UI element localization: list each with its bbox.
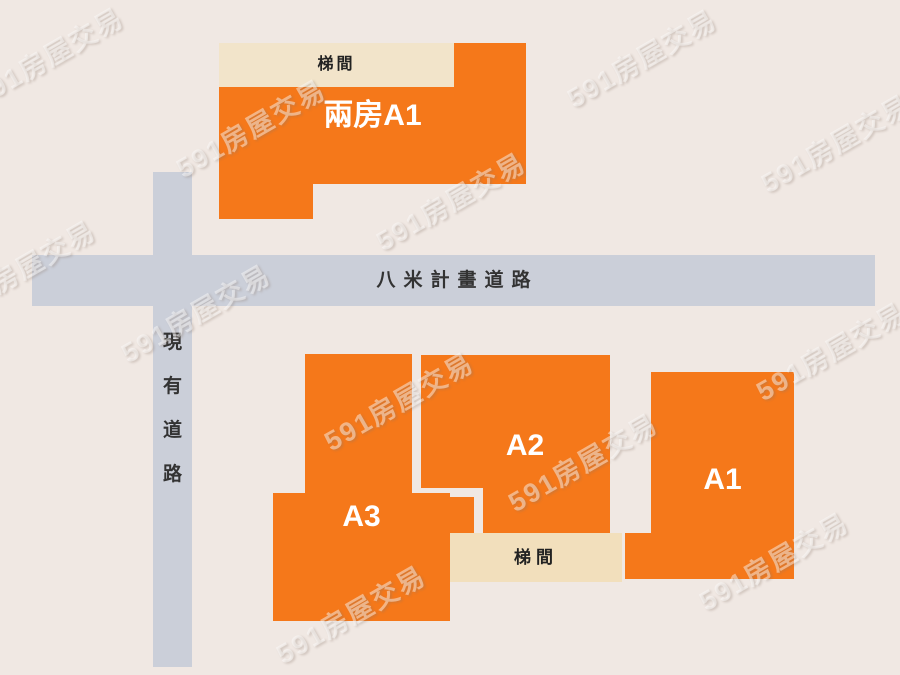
stairwell-bottom-label: 梯間 (450, 533, 622, 582)
watermark: 591房屋交易 (559, 0, 723, 116)
building-tworoom-a1-label: 兩房A1 (219, 98, 526, 134)
building-a3-block (305, 354, 412, 497)
building-a2-block (483, 488, 610, 533)
road-vertical-label-char: 現 (153, 321, 192, 365)
building-tworoom-a1-block (219, 184, 313, 219)
building-a1-label: A1 (651, 463, 794, 497)
site-plan-diagram: 八米計畫道路 現 有 道 路 梯間 兩房A1 A3 A2 A1 梯間 59 (0, 0, 900, 675)
building-a2-block (421, 355, 610, 488)
road-horizontal-label: 八米計畫道路 (32, 255, 875, 306)
building-a2-label: A2 (460, 429, 590, 463)
watermark: 591房屋交易 (0, 0, 130, 114)
building-tworoom-a1-block (454, 43, 526, 91)
stairwell-top-label: 梯間 (219, 43, 454, 87)
road-vertical-label-char: 路 (153, 453, 192, 497)
building-a1-block (625, 533, 651, 579)
road-vertical-label-char: 道 (153, 409, 192, 453)
building-a3-label: A3 (273, 500, 450, 534)
watermark: 591房屋交易 (753, 83, 900, 200)
road-vertical-label: 現 有 道 路 (153, 321, 192, 497)
road-vertical-label-char: 有 (153, 365, 192, 409)
